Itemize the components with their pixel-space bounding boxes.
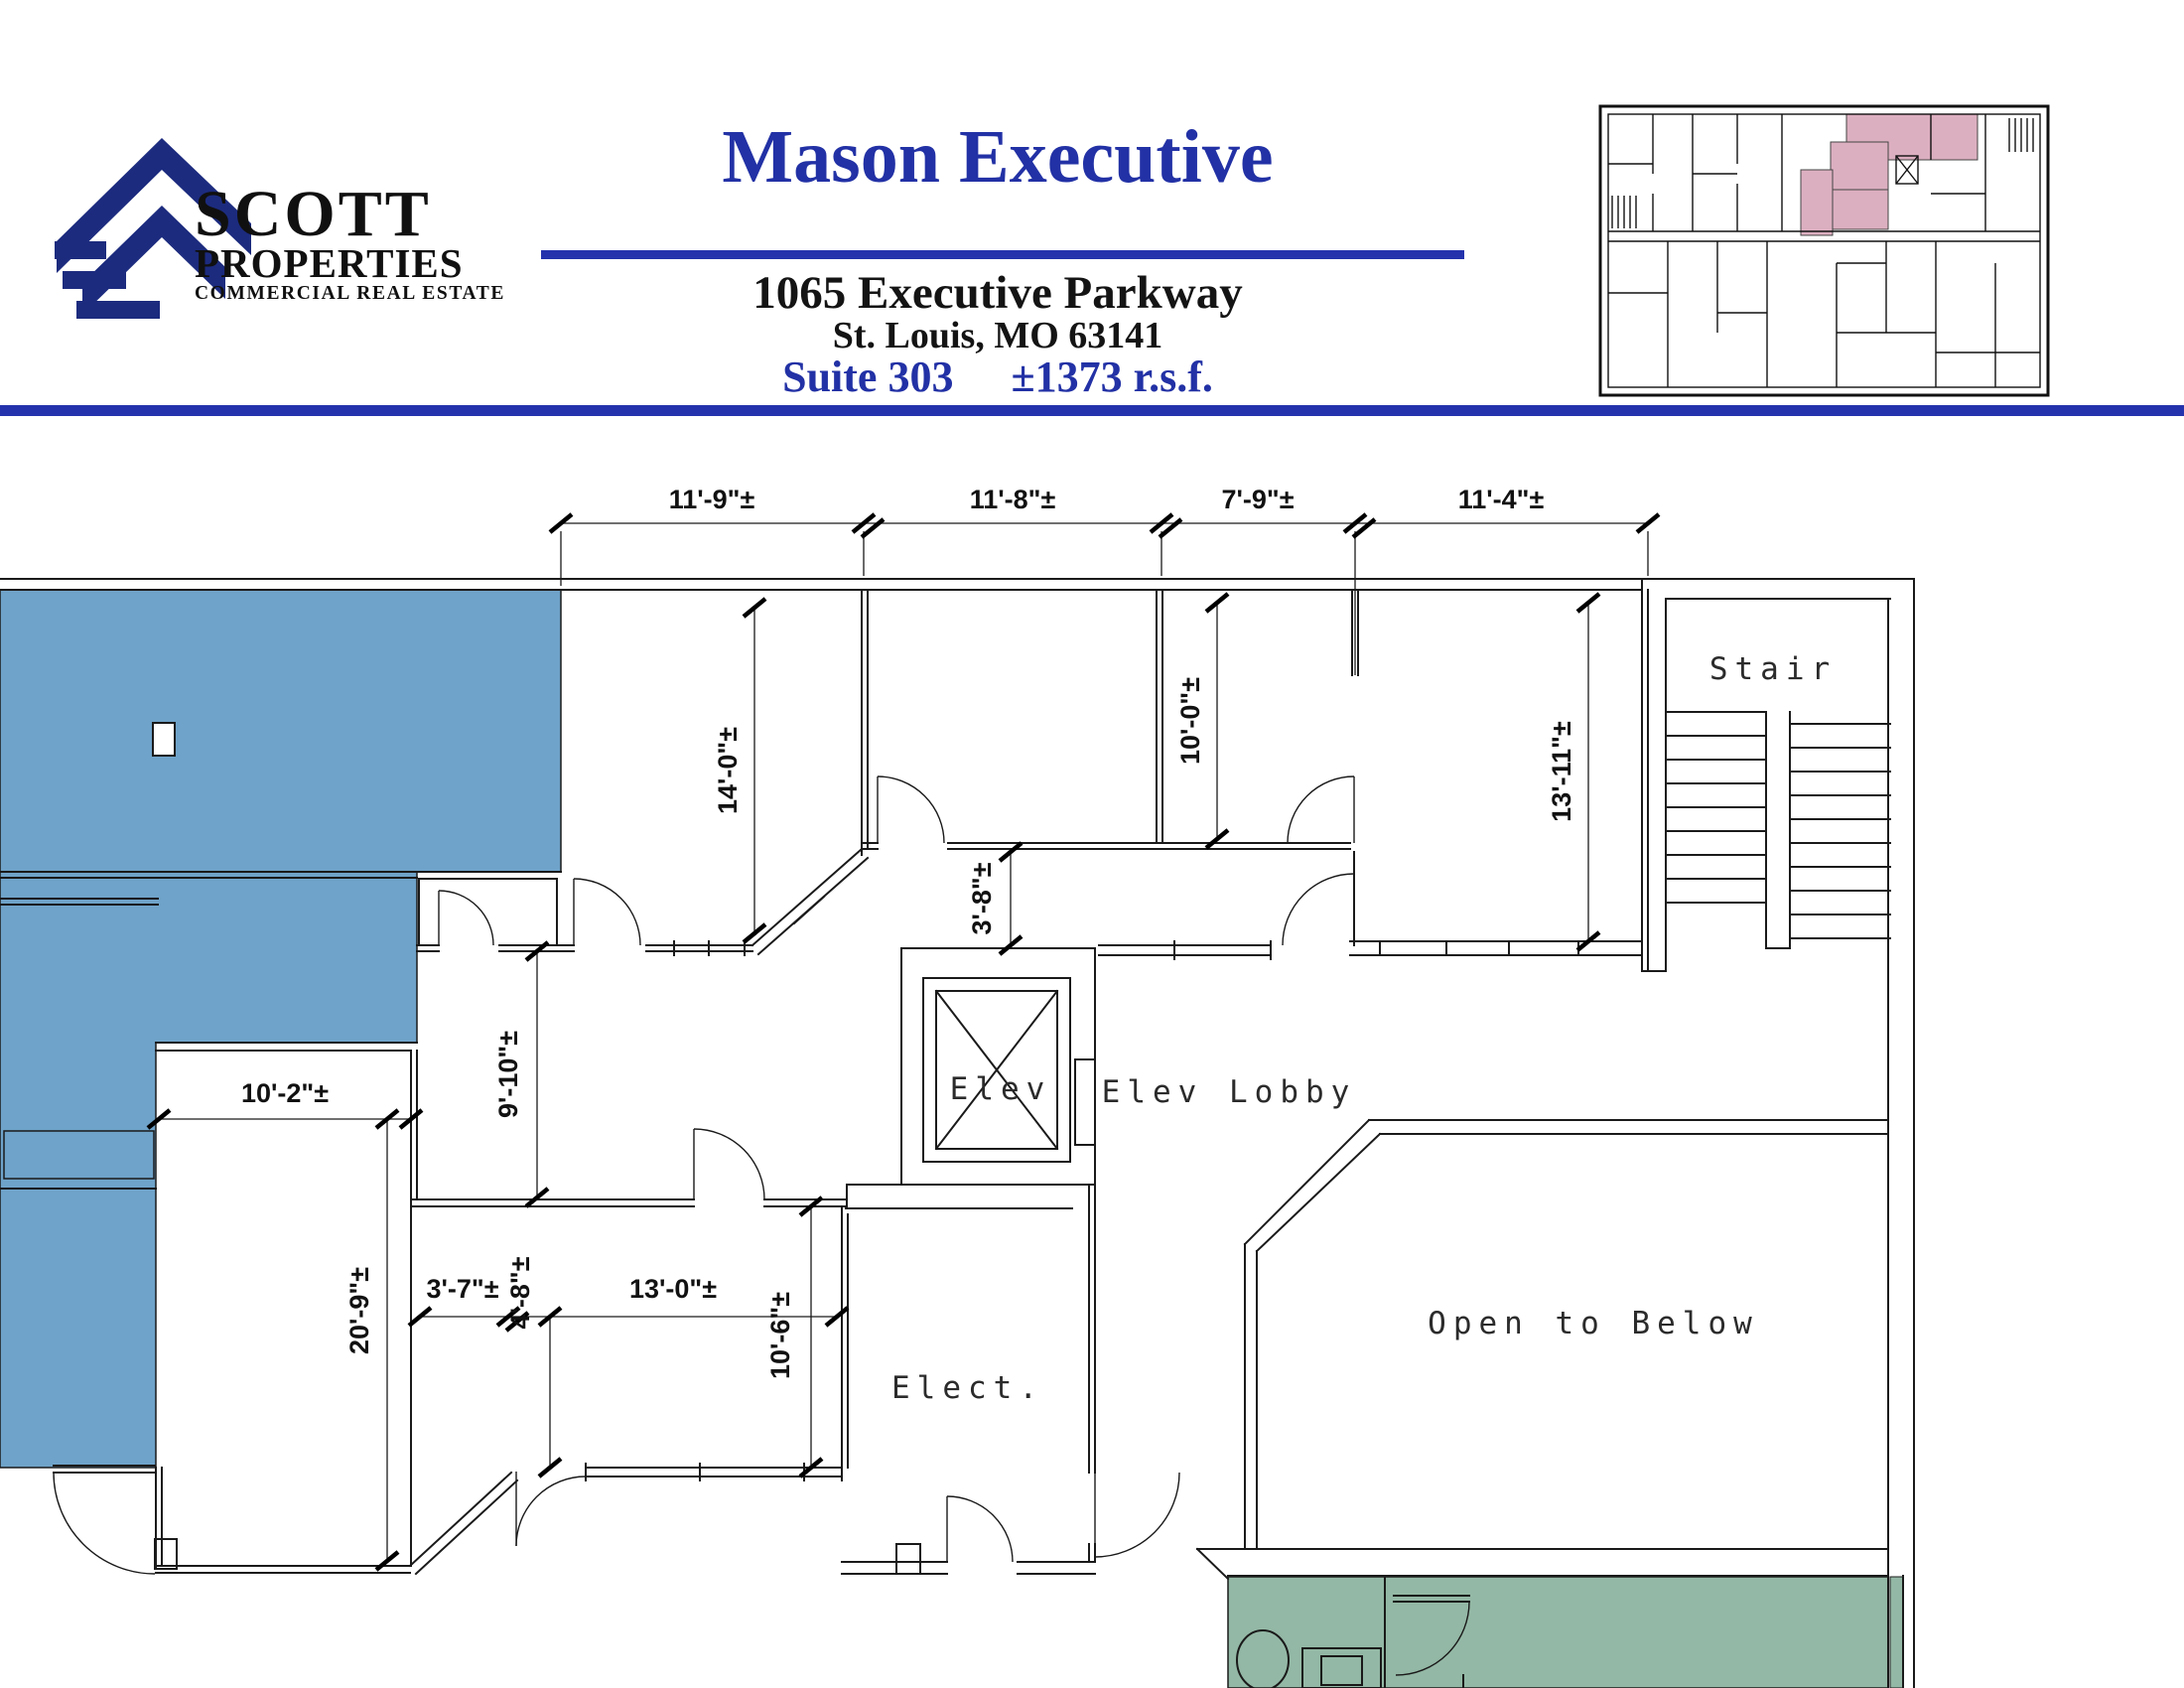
green-suite-sliver [1890, 1577, 1903, 1688]
dimension-4-8: 4'-8"± [505, 1256, 535, 1329]
dimension-11-8: 11'-8"± [970, 485, 1056, 514]
dimension-3-7: 3'-7"± [426, 1274, 498, 1304]
floor-plan-drawing: 11'-9"± 11'-8"± 7'-9"± 11'-4"± 14'-0"± 1… [0, 0, 2184, 1688]
dimension-11-4: 11'-4"± [1458, 485, 1545, 514]
dimension-10-6: 10'-6"± [765, 1292, 795, 1379]
dimension-3-8: 3'-8"± [967, 862, 997, 934]
room-label-elect: Elect. [891, 1370, 1044, 1406]
room-label-stair: Stair [1709, 651, 1837, 687]
dimension-7-9: 7'-9"± [1221, 485, 1294, 514]
dimension-10-2: 10'-2"± [241, 1078, 329, 1108]
flyer-page: SCOTT PROPERTIES COMMERCIAL REAL ESTATE … [0, 0, 2184, 1688]
room-label-elev: Elev [950, 1071, 1052, 1107]
dimension-9-10: 9'-10"± [493, 1031, 523, 1118]
dimension-11-9: 11'-9"± [669, 485, 755, 514]
blue-suite-notch [4, 1131, 154, 1179]
room-label-elev-lobby: Elev Lobby [1102, 1074, 1357, 1110]
room-label-open-to-below: Open to Below [1428, 1306, 1759, 1341]
dimension-13-11: 13'-11"± [1547, 721, 1576, 822]
dimension-10-0: 10'-0"± [1175, 677, 1205, 765]
dimension-20-9: 20'-9"± [344, 1267, 374, 1354]
highlighted-suite-green [1228, 1577, 1888, 1688]
highlighted-suite-blue [0, 590, 561, 1468]
room-labels: Stair Elev Elev Lobby Open to Below Elec… [891, 651, 1837, 1406]
dimension-14-0: 14'-0"± [713, 727, 743, 814]
dimension-13-0: 13'-0"± [629, 1274, 717, 1304]
